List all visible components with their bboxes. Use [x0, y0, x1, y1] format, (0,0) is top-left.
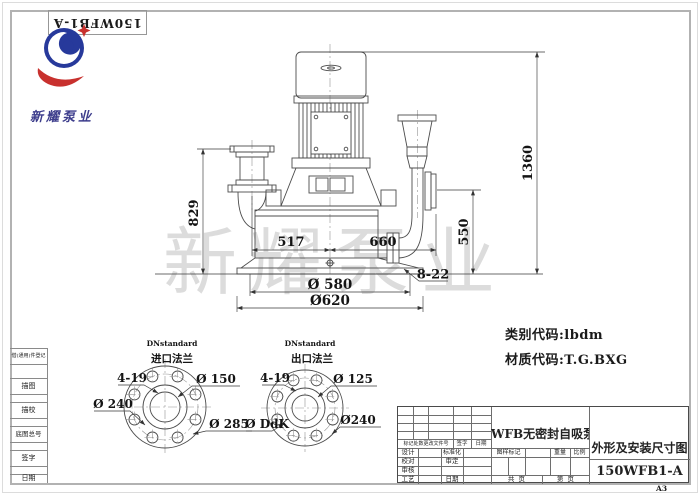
category-code: 类别代码:lbdm [505, 324, 603, 343]
material-code: 材质代码:T.G.BXG [505, 349, 628, 368]
logo-red-swoosh [38, 68, 84, 87]
margin-base-number: 底图总号 [10, 426, 47, 442]
outlet-flange-outer: Ø240 [340, 413, 376, 427]
margin-signature: 签字 [10, 450, 47, 466]
outlet-flange-view: DNstandard 出口法兰 4-19 Ø 125 Ø DdK Ø240 [245, 339, 381, 452]
outlet-flange-inner: Ø 125 [333, 372, 373, 386]
margin-tracing: 描图 [10, 378, 47, 394]
dim-base-diameter: Ø620 [310, 293, 350, 309]
margin-tracing-check: 描校 [10, 402, 47, 418]
role-date: 日期 [441, 475, 463, 484]
inlet-flange-outer: Ø 285 [209, 417, 249, 431]
dim-anchor-holes: 8-22 [417, 268, 450, 283]
logo-star [78, 24, 91, 37]
outlet-flange-bolt-circle: Ø DdK [245, 417, 289, 431]
outlet-flange-standard: DNstandard [285, 339, 336, 348]
product-name: WFB无密封自吸泵 [491, 421, 589, 447]
margin-column: 借(通用)件登记 描图 描校 底图总号 签字 日期 [10, 348, 48, 483]
motor [292, 52, 370, 168]
role-approve-check: 审定 [441, 457, 463, 466]
drawing-title: 外形及安装尺寸图 [589, 437, 690, 459]
role-design: 设计 [398, 448, 418, 457]
stamp-mark: 图样标记 [492, 448, 525, 457]
dim-bolt-circle: Ø 580 [308, 277, 353, 293]
sheet-size-label: A3 [656, 484, 667, 493]
outlet-flange-title: 出口法兰 [291, 352, 333, 365]
inlet-flange-view: DNstandard 进口法兰 4-19 Ø 150 Ø 240 Ø 285 [93, 339, 252, 455]
dim-outlet-height: 550 [457, 218, 472, 245]
funnel-cup [402, 121, 432, 147]
dim-inlet-offset: 517 [277, 235, 304, 250]
pages-total: 共 页 [491, 475, 542, 484]
company-logo [26, 16, 98, 102]
logo-dot [63, 41, 74, 52]
stamp-scale: 比例 [570, 448, 589, 457]
stamp-weight: 重量 [550, 448, 570, 457]
dim-outlet-offset: 660 [369, 235, 396, 250]
outlet-flange-holes: 4-19 [260, 371, 290, 385]
company-name: 新耀泵业 [14, 106, 110, 125]
funnel-rim [398, 115, 436, 121]
role-review: 审核 [398, 466, 418, 475]
margin-date: 日期 [10, 474, 47, 483]
role-standardize: 标准化 [441, 448, 463, 457]
pages-current: 第 页 [542, 475, 589, 484]
dim-inlet-height: 829 [187, 199, 202, 226]
inlet-flange-title: 进口法兰 [151, 352, 193, 365]
role-process: 工艺 [398, 475, 418, 484]
inlet-flange-inner: Ø 150 [196, 372, 236, 386]
tank [255, 210, 378, 258]
drawing-sheet: { "header": { "top_box_number": "150WFB1… [0, 0, 700, 495]
dim-total-height: 1360 [521, 145, 536, 181]
revision-date: 日期 [471, 440, 491, 448]
margin-register: 借(通用)件登记 [10, 348, 47, 364]
title-block: 标记处数更改文件号 签字 日期 设计 校对 审核 工艺 标准化 审定 日期 WF… [397, 406, 689, 483]
role-check: 校对 [398, 457, 418, 466]
drawing-number: 150WFB1-A [589, 459, 690, 484]
revision-sign: 签字 [453, 440, 471, 448]
inlet-flange-bolt-circle: Ø 240 [93, 397, 133, 411]
inlet-flange-holes: 4-19 [117, 371, 147, 385]
revision-header: 标记处数更改文件号 [399, 440, 453, 448]
inlet-flange-standard: DNstandard [147, 339, 198, 348]
